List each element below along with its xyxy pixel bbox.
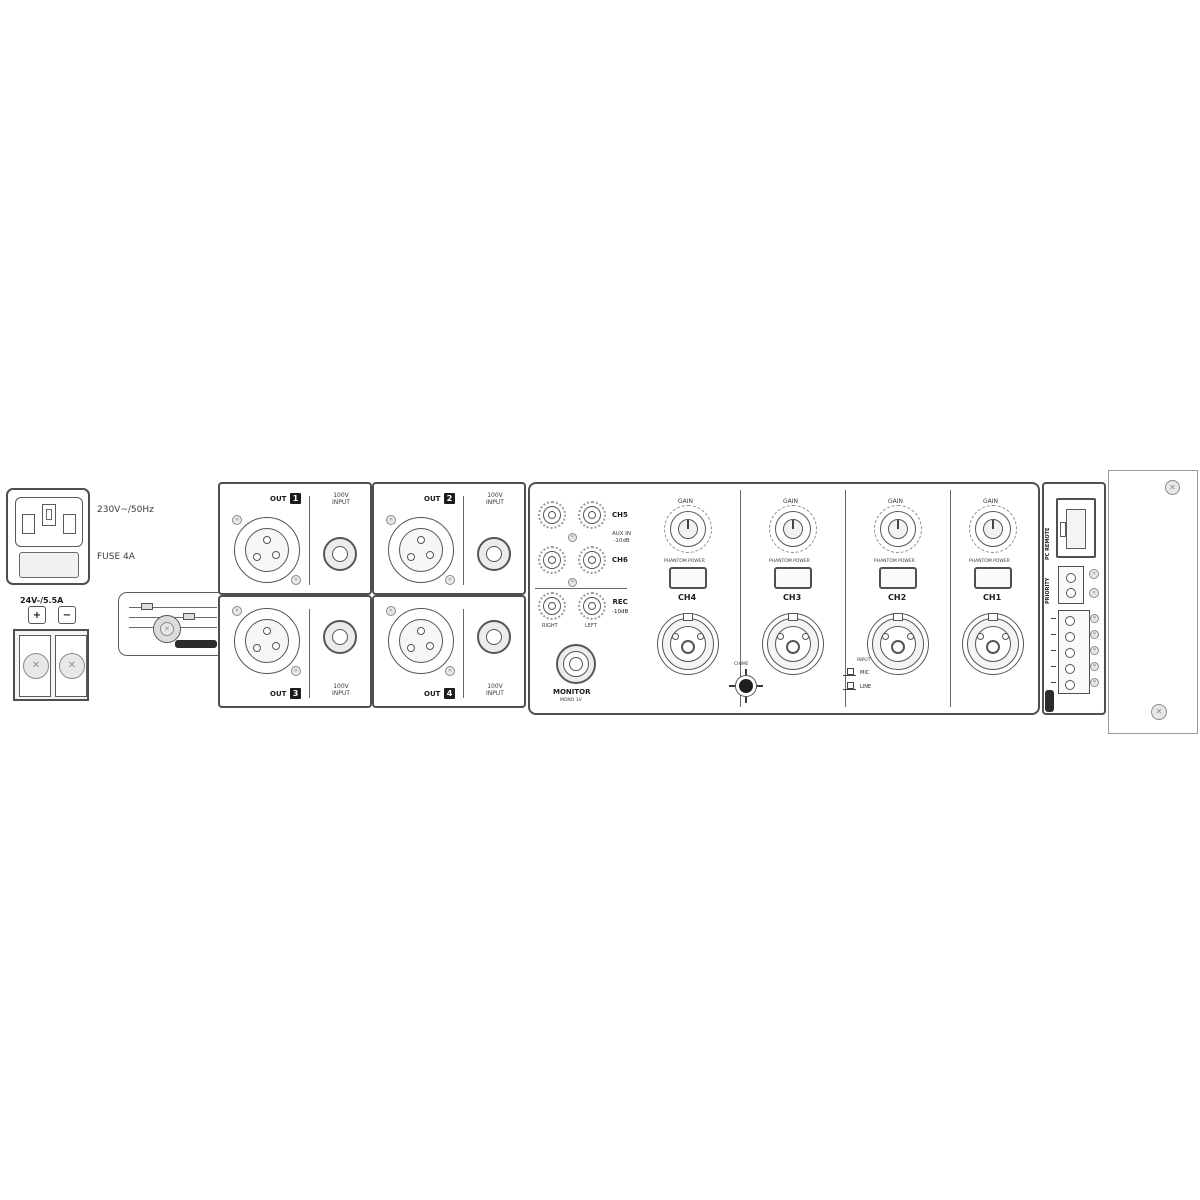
- iec-contact-right: [63, 514, 76, 534]
- rca-screw-2: ✕: [568, 578, 577, 587]
- fuse-drawer: [19, 552, 79, 578]
- output-panel-2: OUT 2 100VINPUT ✕ ✕: [372, 482, 526, 595]
- xlr-pin-3: [263, 536, 271, 544]
- rj45-vertical-label: PC REMOTE: [1045, 500, 1051, 560]
- iec-contact-left: [22, 514, 35, 534]
- output-panel-1: OUT 1 100VINPUT ✕ ✕: [218, 482, 372, 595]
- dc-minus-terminal: −: [58, 606, 76, 624]
- wiring-schematic-box: ✕: [118, 592, 228, 656]
- rca-screw-1: ✕: [568, 533, 577, 542]
- speaker-line-label: 100VINPUT: [486, 683, 504, 697]
- terminal-screw-5: ✕: [1090, 678, 1099, 687]
- rca-ch6-left-hole: [548, 556, 556, 564]
- combo-pin-right: [802, 633, 809, 640]
- plate-screw-bottom: ✕: [1151, 704, 1167, 720]
- mic-wiring-glyph: [843, 670, 856, 676]
- phone-jack-hole: [486, 629, 502, 645]
- xlr-screw-tl: ✕: [232, 606, 242, 616]
- combo-jack-latch: [788, 613, 798, 621]
- iec-contact-earth-inner: [46, 509, 52, 520]
- xlr-pin-2: [272, 642, 280, 650]
- legend-line-label: LINE: [860, 684, 871, 690]
- minus-sign: −: [63, 610, 71, 621]
- combo-pin-left: [977, 633, 984, 640]
- dc-plus-terminal: +: [28, 606, 46, 624]
- schematic-component-1: [141, 603, 153, 610]
- combo-jack-hole: [681, 640, 695, 654]
- legend-caption: INPUT: [857, 658, 870, 663]
- out-label: OUT: [270, 495, 286, 503]
- speaker-line-label: 100VINPUT: [332, 492, 350, 506]
- out-label: OUT: [424, 495, 440, 503]
- terminal-screw-1: ✕: [1090, 614, 1099, 623]
- zone-number: 2: [444, 493, 455, 504]
- combo-pin-left: [882, 633, 889, 640]
- channel-strip-ch3: GAIN PHANTOM POWER CH3: [743, 490, 843, 707]
- channel-strip-ch4: GAIN PHANTOM POWER CH4: [638, 490, 738, 707]
- gain-knob-pointer: [792, 520, 794, 529]
- channel-name: CH2: [888, 593, 906, 602]
- panel-divider: [463, 609, 464, 698]
- gain-knob-pointer: [897, 520, 899, 529]
- xlr-pin-3: [263, 627, 271, 635]
- input-wiring-legend: INPUT MIC LINE: [843, 658, 905, 702]
- xlr-pin-3: [417, 627, 425, 635]
- gain-label: GAIN: [678, 498, 693, 505]
- terminal-pin-mark-2: [1051, 634, 1056, 635]
- xlr-insert: [245, 619, 289, 663]
- xlr-pin-2: [272, 551, 280, 559]
- xlr-insert: [245, 528, 289, 572]
- output-panel-3: ✕ ✕ OUT 3 100VINPUT: [218, 595, 372, 708]
- legend-mic-label: MIC: [860, 670, 869, 676]
- aux-in-label: AUX IN-10dB: [612, 531, 631, 545]
- plus-sign: +: [33, 610, 41, 621]
- xlr-pin-2: [426, 551, 434, 559]
- zone-number-text: 3: [293, 689, 299, 698]
- xlr-screw-tl: ✕: [386, 606, 396, 616]
- rj45-jack: [1056, 498, 1096, 558]
- blank-cover-plate: ✕ ✕: [1108, 470, 1198, 734]
- monitor-sub-label: MONO 1V: [560, 698, 582, 703]
- xlr-pin-1: [253, 553, 261, 561]
- terminal-hole-5: [1065, 680, 1075, 690]
- terminal-hole-4: [1065, 664, 1075, 674]
- schematic-component-2: [183, 613, 195, 620]
- dc-terminal-cell-plus: ✕: [19, 635, 51, 697]
- schematic-tag: [175, 640, 217, 648]
- rj45-opening: [1066, 509, 1086, 549]
- monitor-jack-hole: [569, 657, 583, 671]
- priority-connector: [1058, 566, 1084, 604]
- combo-jack-hole: [986, 640, 1000, 654]
- switch-label: PHANTOM POWER: [969, 559, 1010, 564]
- zone-number: 3: [290, 688, 301, 699]
- combo-pin-left: [672, 633, 679, 640]
- strip-divider-1: [740, 490, 741, 707]
- dc-terminal-cell-minus: ✕: [55, 635, 87, 697]
- zone-number-text: 4: [447, 689, 453, 698]
- xlr-pin-2: [426, 642, 434, 650]
- remote-terminal-block: [1058, 610, 1090, 694]
- xlr-screw-tl: ✕: [232, 515, 242, 525]
- terminal-screw-2: ✕: [1090, 630, 1099, 639]
- combo-jack-latch: [893, 613, 903, 621]
- rec-separator-line: [535, 588, 627, 589]
- output-panel-4: ✕ ✕ OUT 4 100VINPUT: [372, 595, 526, 708]
- terminal-screw-3: ✕: [1090, 646, 1099, 655]
- switch-label: PHANTOM POWER: [664, 559, 705, 564]
- priority-pin-2: [1066, 588, 1076, 598]
- xlr-screw-tl: ✕: [386, 515, 396, 525]
- xlr-screw-br: ✕: [291, 666, 301, 676]
- terminal-pin-mark-5: [1051, 682, 1056, 683]
- dc-screw-minus: ✕: [59, 653, 85, 679]
- xlr-pin-1: [253, 644, 261, 652]
- phone-jack-hole: [486, 546, 502, 562]
- monitor-label: MONITOR: [553, 688, 591, 696]
- combo-pin-right: [1002, 633, 1009, 640]
- terminal-hole-2: [1065, 632, 1075, 642]
- legend-row-line: LINE: [843, 684, 871, 690]
- phantom-switch: [669, 567, 707, 589]
- dc-screw-plus: ✕: [23, 653, 49, 679]
- zone-number: 4: [444, 688, 455, 699]
- panel-divider: [309, 609, 310, 698]
- ch5-label: CH5: [612, 511, 628, 519]
- fuse-label: FUSE 4A: [97, 552, 135, 562]
- xlr-insert: [399, 619, 443, 663]
- priority-pin-1: [1066, 573, 1076, 583]
- rec-left-caption: LEFT: [585, 623, 597, 629]
- phantom-switch: [879, 567, 917, 589]
- rec-right-caption: RIGHT: [542, 623, 558, 629]
- xlr-pin-1: [407, 553, 415, 561]
- speaker-line-label: 100VINPUT: [332, 683, 350, 697]
- out-label: OUT: [424, 690, 440, 698]
- xlr-screw-br: ✕: [445, 575, 455, 585]
- xlr-pin-3: [417, 536, 425, 544]
- phone-jack-hole: [332, 629, 348, 645]
- dc-input-label: 24V-/5.5A: [20, 596, 63, 605]
- phone-jack-hole: [332, 546, 348, 562]
- gain-knob-pointer: [992, 520, 994, 529]
- gain-label: GAIN: [888, 498, 903, 505]
- rca-ch6-right-hole: [588, 556, 596, 564]
- speaker-line-label: 100VINPUT: [486, 492, 504, 506]
- zone-number-text: 2: [447, 494, 453, 503]
- rca-ch5-right-hole: [588, 511, 596, 519]
- combo-pin-right: [697, 633, 704, 640]
- channel-name: CH1: [983, 593, 1001, 602]
- channel-strip-ch1: GAIN PHANTOM POWER CH1: [943, 490, 1043, 707]
- rca-rec-left-hole: [588, 602, 596, 610]
- io-column-panel: PC REMOTE PRIORITY ✕ ✕ ✕ ✕ ✕ ✕ ✕: [1042, 482, 1106, 715]
- mains-inlet-module: [6, 488, 90, 585]
- switch-label: PHANTOM POWER: [874, 559, 915, 564]
- gain-knob-pointer: [687, 520, 689, 529]
- legend-row-mic: MIC: [843, 670, 869, 676]
- chime-trimmer-knob: [739, 679, 753, 693]
- rca-ch5-left-hole: [548, 511, 556, 519]
- gain-label: GAIN: [983, 498, 998, 505]
- priority-screw-1: ✕: [1089, 569, 1099, 579]
- rear-panel-diagram: 230V~/50Hz FUSE 4A 24V-/5.5A + − ✕ ✕ ✕ O…: [0, 0, 1200, 1200]
- schematic-trimpot-slot: ✕: [160, 622, 174, 636]
- dc-terminal-block: ✕ ✕: [13, 629, 89, 701]
- plate-screw-top: ✕: [1165, 480, 1180, 495]
- terminal-screw-4: ✕: [1090, 662, 1099, 671]
- terminal-pin-mark-4: [1051, 666, 1056, 667]
- rj45-clip: [1060, 522, 1066, 537]
- iec-socket: [15, 497, 83, 547]
- xlr-pin-1: [407, 644, 415, 652]
- chime-label: CHIME: [734, 662, 749, 667]
- mains-voltage-label: 230V~/50Hz: [97, 505, 154, 515]
- xlr-insert: [399, 528, 443, 572]
- terminal-pin-mark-3: [1051, 650, 1056, 651]
- gain-label: GAIN: [783, 498, 798, 505]
- combo-jack-latch: [988, 613, 998, 621]
- priority-screw-2: ✕: [1089, 588, 1099, 598]
- io-dark-tag: [1045, 690, 1054, 712]
- combo-pin-right: [907, 633, 914, 640]
- zone-number-text: 1: [293, 494, 299, 503]
- phantom-switch: [774, 567, 812, 589]
- combo-pin-left: [777, 633, 784, 640]
- switch-label: PHANTOM POWER: [769, 559, 810, 564]
- combo-jack-latch: [683, 613, 693, 621]
- channel-name: CH3: [783, 593, 801, 602]
- panel-divider: [309, 496, 310, 585]
- phantom-switch: [974, 567, 1012, 589]
- rec-label: REC-10dB: [612, 598, 628, 616]
- xlr-screw-br: ✕: [291, 575, 301, 585]
- zone-number: 1: [290, 493, 301, 504]
- combo-jack-hole: [891, 640, 905, 654]
- out-label: OUT: [270, 690, 286, 698]
- channel-name: CH4: [678, 593, 696, 602]
- combo-jack-hole: [786, 640, 800, 654]
- priority-vertical-label: PRIORITY: [1045, 566, 1051, 604]
- xlr-screw-br: ✕: [445, 666, 455, 676]
- panel-divider: [463, 496, 464, 585]
- terminal-hole-1: [1065, 616, 1075, 626]
- terminal-hole-3: [1065, 648, 1075, 658]
- terminal-pin-mark-1: [1051, 618, 1056, 619]
- rca-rec-right-hole: [548, 602, 556, 610]
- ch6-label: CH6: [612, 556, 628, 564]
- line-wiring-glyph: [843, 684, 856, 690]
